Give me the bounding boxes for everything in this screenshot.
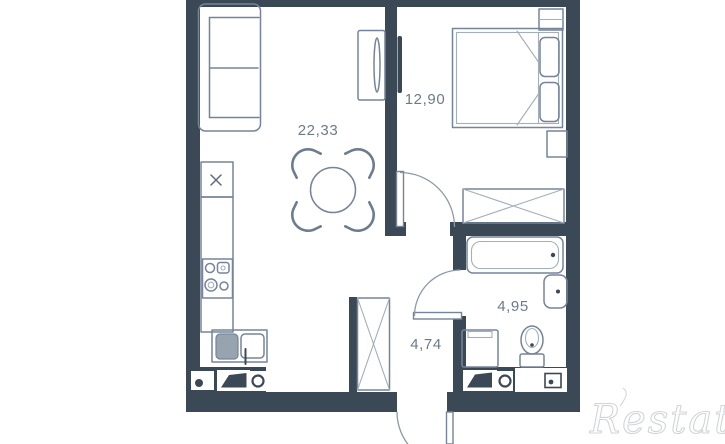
dining-table — [311, 168, 356, 213]
bathtub-outline — [467, 237, 563, 273]
chair — [285, 202, 321, 238]
hallway-area-label: 4,74 — [410, 336, 442, 353]
utility-symbols-kitchen — [191, 370, 267, 391]
washing-machine-outline — [462, 330, 498, 367]
wall-bathroom-upper — [453, 236, 466, 270]
kitchen — [201, 162, 267, 364]
pipe-riser-icon — [253, 376, 264, 387]
washbasin — [544, 275, 567, 308]
shaft-inner-box-icon — [545, 374, 561, 388]
burner — [220, 282, 228, 290]
toilet-bowl — [521, 326, 543, 354]
pillow — [540, 38, 559, 77]
drain-icon — [551, 253, 555, 257]
burner-detail — [208, 282, 214, 288]
toilet-tank — [520, 354, 544, 367]
tv-unit-living-room — [358, 31, 385, 101]
living-room-area-label: 22,33 — [298, 122, 339, 139]
wall-hall-partition — [349, 297, 357, 392]
drainboard — [216, 334, 238, 359]
burner-detail — [221, 266, 225, 270]
toilet-drain-icon — [530, 343, 534, 347]
bedroom-door — [397, 172, 455, 228]
burner — [206, 264, 215, 273]
sink-bowl — [241, 334, 264, 358]
door-swing-arc — [400, 173, 455, 228]
door-leaf — [397, 172, 404, 227]
bathtub — [467, 237, 563, 273]
sink-x-icon — [211, 175, 221, 185]
bed-outline — [453, 29, 563, 128]
bathroom-area-label: 4,95 — [497, 298, 529, 315]
dining-set — [285, 142, 381, 238]
burner — [205, 279, 217, 291]
door-swing-arc — [397, 412, 450, 444]
chair — [285, 142, 321, 178]
sofa — [199, 4, 261, 131]
nightstand-bottom — [547, 131, 567, 157]
washing-machine — [462, 330, 498, 367]
wall-right — [566, 0, 580, 412]
floor-plan-drawing: 22,33 12,90 4,95 4,74 Restate — [0, 0, 725, 444]
entrance-door — [397, 412, 453, 444]
door-swing-arc — [415, 270, 461, 316]
duvet-fold — [517, 31, 539, 62]
floor-plan-page: 22,33 12,90 4,95 4,74 Restate — [0, 0, 725, 444]
wall-living-bedroom — [385, 0, 397, 226]
pipe-riser-icon — [500, 376, 511, 387]
hallway-closet — [358, 298, 390, 390]
nightstand-top — [539, 9, 563, 30]
bed — [453, 29, 563, 128]
bathroom-door — [414, 270, 462, 319]
washbasin-outline — [544, 275, 567, 308]
tv-bedroom — [398, 36, 403, 93]
toilet — [520, 326, 544, 367]
washing-machine-panel — [468, 332, 492, 338]
shaft-dot-icon — [549, 380, 554, 385]
tv-screen — [374, 38, 380, 92]
door-leaf — [414, 313, 462, 320]
wall-bedroom-bathroom — [450, 222, 580, 236]
pillow — [540, 83, 559, 122]
watermark: Restate — [589, 388, 725, 443]
mattress — [457, 33, 559, 124]
duvet-fold — [517, 94, 539, 125]
burner — [218, 263, 230, 274]
bathtub-inner — [472, 242, 559, 269]
faucet-dot-icon — [556, 290, 560, 294]
outlet-box-icon — [191, 371, 214, 390]
chair — [345, 202, 381, 238]
wardrobe-bedroom — [463, 189, 564, 223]
utility-symbols-bathroom — [463, 368, 567, 392]
watermark-text: Restate — [589, 397, 725, 443]
bedroom-area-label: 12,90 — [405, 91, 446, 108]
outlet-dot-icon — [195, 379, 203, 387]
door-leaf — [447, 412, 454, 444]
chair — [345, 142, 381, 178]
wall-bottom-right — [447, 392, 580, 412]
wall-bottom-left — [186, 392, 397, 412]
tv-cabinet — [358, 31, 385, 101]
